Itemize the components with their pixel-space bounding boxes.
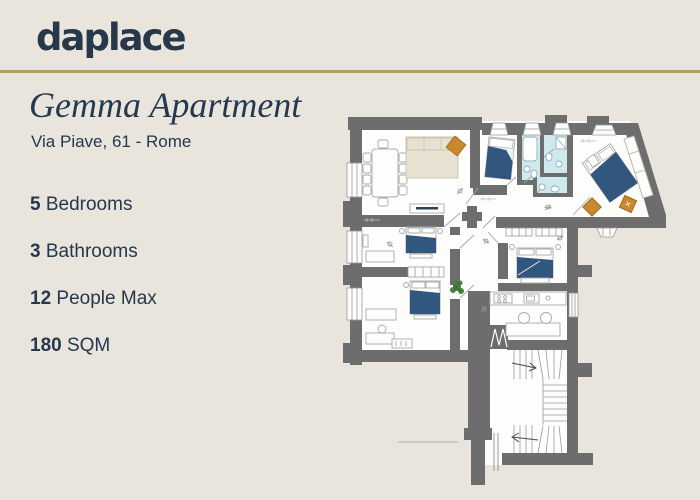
page-title: Gemma Apartment: [29, 84, 301, 126]
lamp: [510, 245, 515, 250]
stool: [541, 313, 552, 324]
bedroom-top-center: [485, 137, 515, 179]
tv: [416, 207, 438, 210]
lamp: [404, 283, 409, 288]
bench: [414, 315, 436, 319]
dining-table: [372, 149, 398, 197]
brand-logo: daplace: [36, 16, 185, 59]
sink: [556, 161, 562, 167]
desk: [366, 333, 394, 344]
listing-address: Via Piave, 61 - Rome: [31, 132, 191, 152]
toilet: [531, 170, 537, 178]
spec-bathrooms: 3 Bathrooms: [30, 241, 157, 263]
toilet: [546, 153, 552, 161]
table: [506, 323, 560, 336]
lamp: [438, 229, 443, 234]
bedroom-center: [510, 245, 561, 284]
spec-bedrooms: 5 Bedrooms: [30, 194, 157, 216]
radiator: [363, 235, 368, 247]
dresser: [366, 309, 396, 320]
spec-list: 5 Bedrooms 3 Bathrooms 12 People Max 180…: [30, 194, 157, 382]
bench: [410, 254, 432, 258]
bench: [521, 278, 549, 283]
sink: [539, 184, 545, 190]
radiator: [392, 339, 412, 348]
lamp: [400, 229, 405, 234]
stool: [519, 313, 530, 324]
spec-people: 12 People Max: [30, 288, 157, 310]
floor-plan: [340, 85, 670, 500]
dresser: [366, 251, 394, 262]
cooktop: [494, 294, 512, 303]
spec-sqm: 180 SQM: [30, 335, 157, 357]
gold-divider: [0, 70, 700, 73]
bathtub: [523, 137, 537, 161]
sink: [524, 166, 530, 172]
listing-flyer: { "page": { "background_color": "#e9e5dc…: [0, 0, 700, 500]
lamp: [556, 245, 561, 250]
toilet: [551, 186, 559, 192]
